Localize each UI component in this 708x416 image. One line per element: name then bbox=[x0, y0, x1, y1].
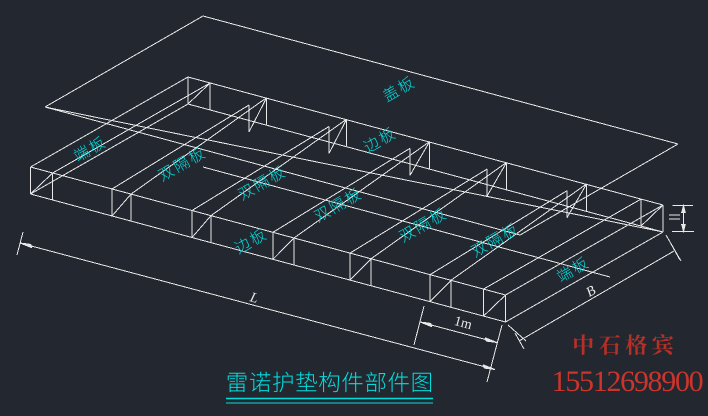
svg-text:B: B bbox=[584, 283, 599, 300]
svg-text:1m: 1m bbox=[452, 314, 473, 333]
svg-text:15512698900: 15512698900 bbox=[552, 365, 703, 398]
svg-text:L: L bbox=[247, 290, 260, 307]
